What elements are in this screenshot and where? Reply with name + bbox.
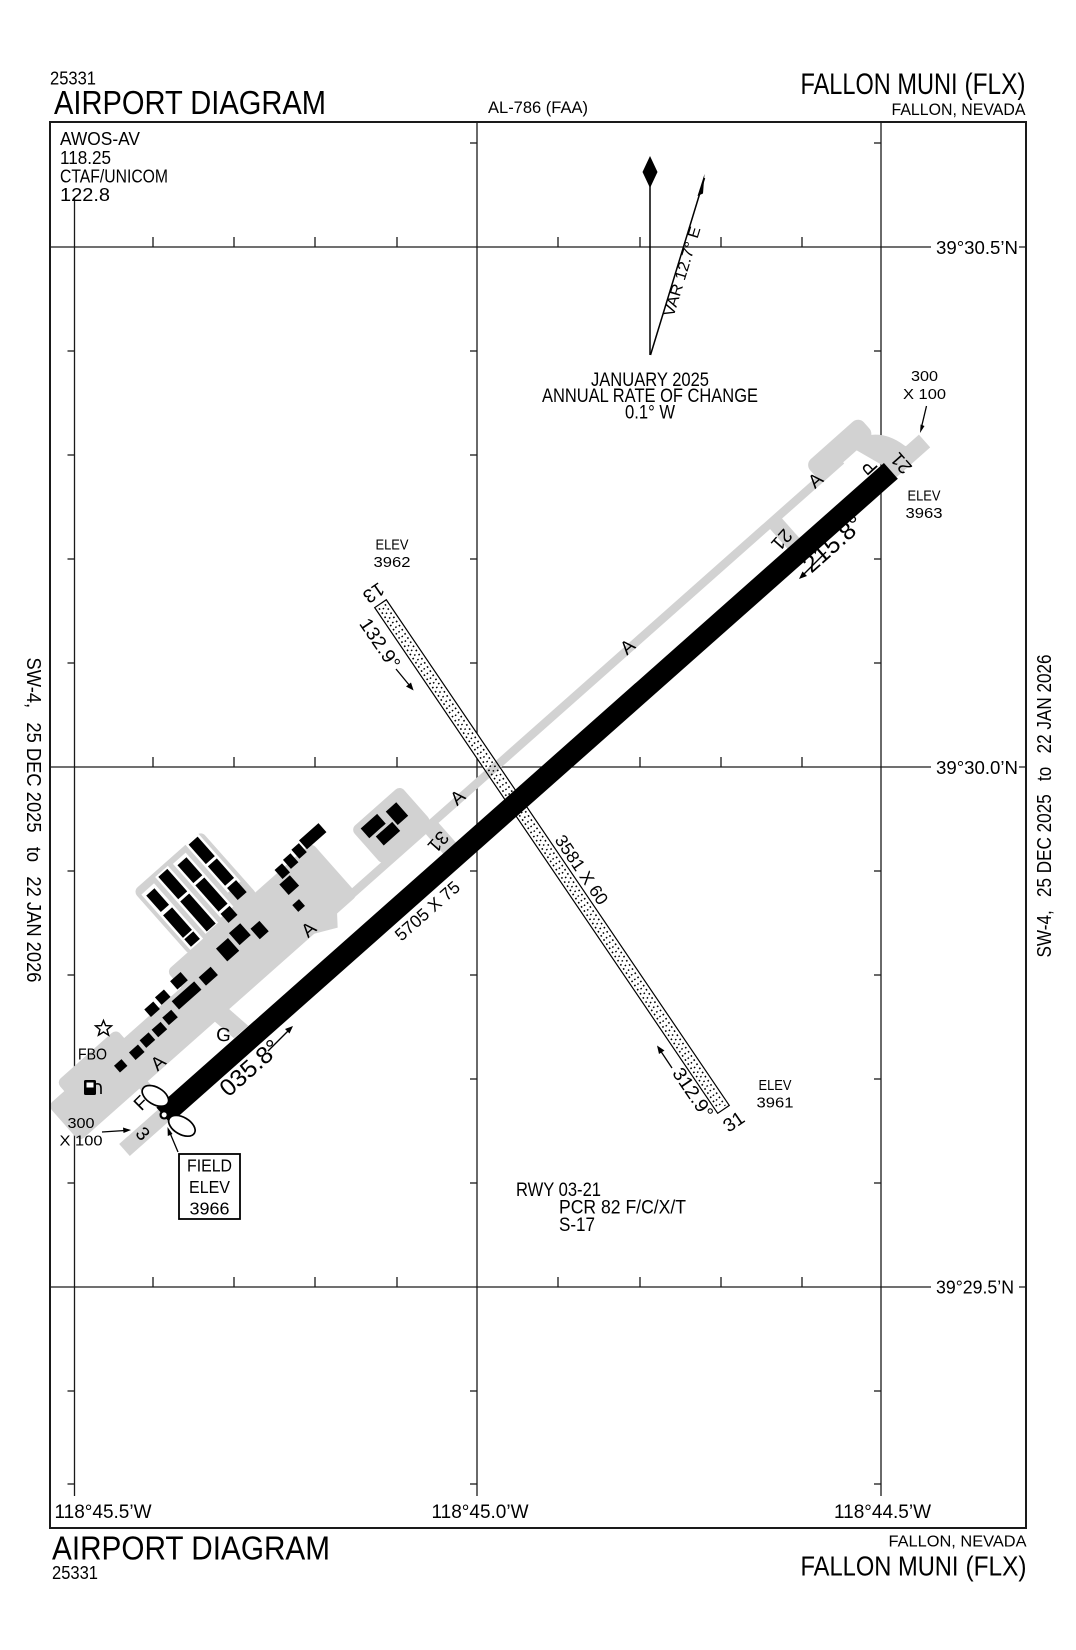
svg-text:3963: 3963 (906, 506, 943, 522)
svg-text:FALLON, NEVADA: FALLON, NEVADA (889, 1534, 1027, 1551)
svg-text:118.25: 118.25 (60, 148, 111, 168)
svg-text:FALLON, NEVADA: FALLON, NEVADA (892, 101, 1026, 119)
svg-text:39°29.5’N: 39°29.5’N (936, 1277, 1014, 1298)
svg-text:ELEV: ELEV (759, 1078, 792, 1094)
svg-text:122.8: 122.8 (60, 185, 110, 205)
svg-text:FBO: FBO (78, 1047, 107, 1064)
svg-text:39°30.5’N: 39°30.5’N (936, 237, 1018, 258)
svg-text:SW-4, 25 DEC 2025 to 22 JAN: SW-4, 25 DEC 2025 to 22 JAN 2026 (22, 658, 44, 983)
svg-text:AIRPORT DIAGRAM: AIRPORT DIAGRAM (54, 84, 326, 121)
svg-text:ELEV: ELEV (376, 538, 409, 554)
svg-text:ELEV: ELEV (908, 489, 941, 505)
svg-text:3961: 3961 (757, 1096, 794, 1112)
svg-text:AWOS-AV: AWOS-AV (60, 129, 140, 149)
svg-text:ELEV: ELEV (189, 1177, 230, 1197)
svg-text:FALLON MUNI: FALLON MUNI (801, 1551, 959, 1582)
svg-text:FALLON MUNI: FALLON MUNI (801, 68, 958, 101)
svg-text:300: 300 (911, 369, 938, 385)
svg-text:CTAF/UNICOM: CTAF/UNICOM (60, 166, 168, 186)
svg-text:S-17: S-17 (559, 1215, 595, 1236)
svg-text:VAR 12.7° E: VAR 12.7° E (661, 225, 704, 319)
svg-text:118°44.5’W: 118°44.5’W (834, 1502, 931, 1523)
svg-text:3962: 3962 (374, 555, 411, 571)
svg-text:SW-4, 25 DEC 2025 to 22 JAN: SW-4, 25 DEC 2025 to 22 JAN 2026 (1034, 655, 1056, 958)
svg-text:39°30.0’N: 39°30.0’N (936, 757, 1018, 778)
svg-text:118°45.5’W: 118°45.5’W (55, 1502, 152, 1523)
svg-text:31: 31 (720, 1108, 749, 1137)
svg-text:(FLX): (FLX) (966, 1551, 1027, 1582)
svg-text:118°45.0’W: 118°45.0’W (432, 1502, 529, 1523)
svg-text:G: G (215, 1024, 232, 1046)
svg-text:X 100: X 100 (903, 387, 946, 403)
svg-text:3966: 3966 (190, 1199, 230, 1219)
svg-text:25331: 25331 (52, 1562, 98, 1583)
svg-text:AL-786 (FAA): AL-786 (FAA) (488, 98, 588, 117)
svg-text:FIELD: FIELD (187, 1156, 232, 1176)
svg-text:300: 300 (68, 1116, 95, 1132)
svg-text:0.1° W: 0.1° W (625, 403, 675, 424)
svg-text:X 100: X 100 (60, 1134, 103, 1150)
svg-text:(FLX): (FLX) (965, 68, 1026, 101)
